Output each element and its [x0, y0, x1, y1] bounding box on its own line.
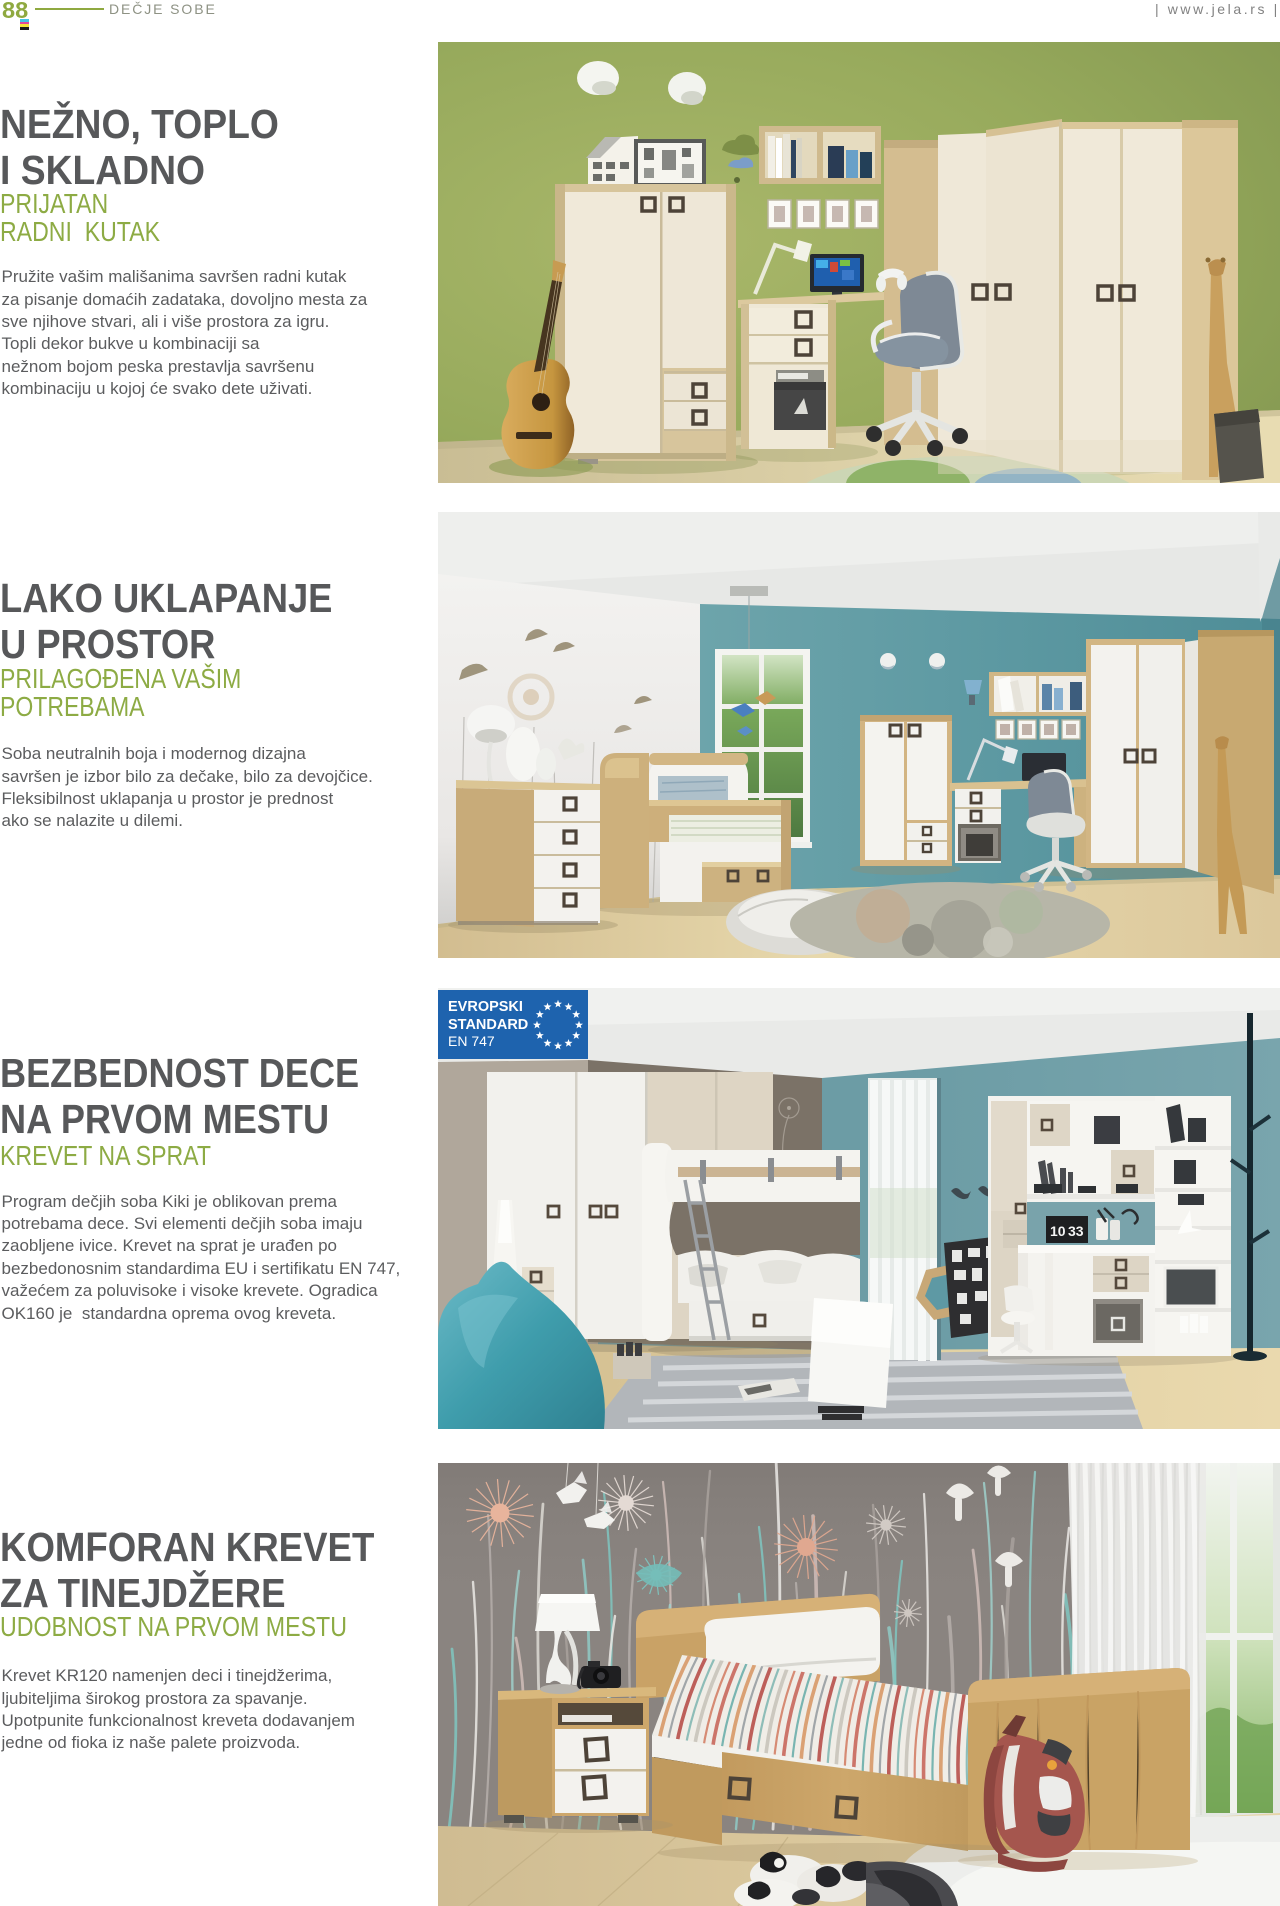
svg-text:EVROPSKI: EVROPSKI — [448, 999, 523, 1015]
svg-text:33: 33 — [1068, 1223, 1084, 1239]
svg-text:EN 747: EN 747 — [448, 1033, 495, 1049]
svg-text:STANDARD: STANDARD — [448, 1017, 528, 1033]
svg-text:10: 10 — [1050, 1223, 1066, 1239]
